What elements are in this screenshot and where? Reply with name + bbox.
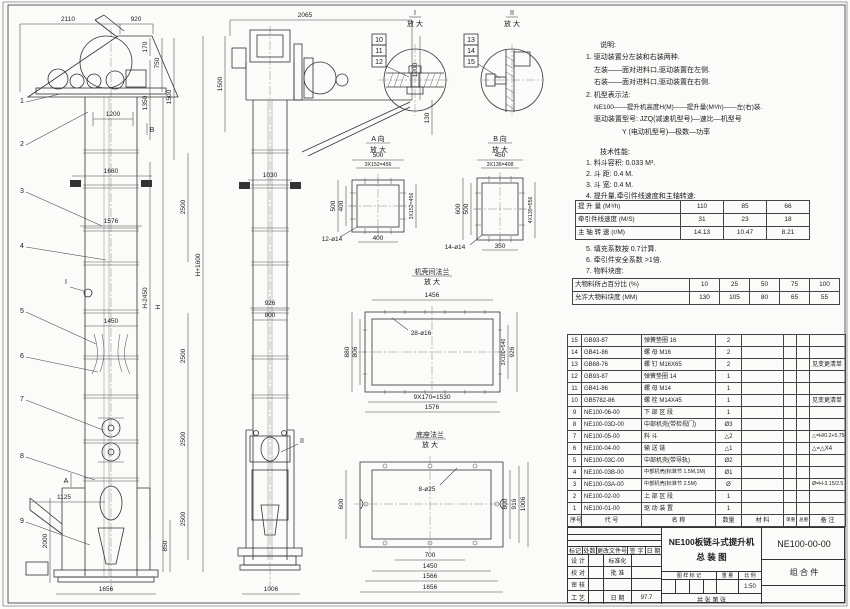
dim-926-side: 926 <box>265 300 276 307</box>
bom-unitweight <box>784 491 797 503</box>
dim-b-pitch: 3X136=408 <box>487 162 514 168</box>
flange-enlarged: 放 大 <box>424 277 440 286</box>
flange-title: 机壳间法兰 <box>415 267 450 276</box>
bom-header-material: 材 料 <box>742 515 784 527</box>
balloon-12: 12 <box>375 59 383 66</box>
perf-row-label: 牵引件线速度 (M/S) <box>576 214 681 227</box>
dim-base-600: 600 <box>338 498 345 509</box>
dim-base-holes: 8-ø25 <box>419 486 436 493</box>
bom-material <box>742 347 784 359</box>
bom-qty: Ø2 <box>716 455 742 467</box>
bom-row: 13GB68-76螺 钉 M16X652见变更清单 <box>568 359 846 371</box>
bom-row: 4NE100-03B-00中部机壳(标准节 1.5M,1M)Ø1 <box>568 467 846 479</box>
role-check: 校 对 <box>568 566 588 578</box>
bom-name: 螺 钉 M16X65 <box>642 359 716 371</box>
bom-code: NE100-03C-00 <box>582 455 642 467</box>
balloon-11: 11 <box>375 48 382 55</box>
dim-f-holes: 28-ø16 <box>411 330 432 337</box>
dim-b-600: 600 <box>455 203 462 214</box>
bom-no: 9 <box>568 407 582 419</box>
bom-name: 中部机壳(带导轨) <box>642 455 716 467</box>
detail-i-enlarged: 放 大 <box>407 19 423 28</box>
bom-material <box>742 395 784 407</box>
perf-value: 10.47 <box>724 227 767 240</box>
bom-totalweight <box>797 371 810 383</box>
dim-1576-flange: 1576 <box>425 404 440 411</box>
dim-1680: 1680 <box>104 168 119 175</box>
table-row: 主 轴 转 速 (r/M) 14.13 10.47 8.21 <box>576 227 810 240</box>
dim-1125: 1125 <box>57 494 71 501</box>
base-flange-detail: 底座法兰 放 大 8-ø25 600 800 916 1006 700 1450… <box>338 430 528 592</box>
table-row: 提 升 量 (M³/h) 110 85 66 <box>576 201 810 214</box>
bom-unitweight <box>784 359 797 371</box>
bom-code: GB93-87 <box>582 371 642 383</box>
bom-qty: 2 <box>716 359 742 371</box>
lump-size-table: 大物料所占百分比 (%) 10 25 50 75 100 允许大物料块度 (MM… <box>572 278 840 305</box>
bom-no: 8 <box>568 419 582 431</box>
bom-note: 见变更清单 <box>810 359 846 371</box>
drawing-title-line2: 总 装 图 <box>696 551 726 563</box>
bom-note <box>810 455 846 467</box>
side-bracket-left <box>239 182 250 189</box>
tech-block: 技术性能: 1. 料斗容积: 0.033 M³. 2. 斗 距: 0.4 M. … <box>578 147 844 202</box>
left-elevation-view: 2110 920 170 750 1350 1500 H-2450 H H+16… <box>20 15 203 594</box>
drawing-title-line1: NE100板链斗式提升机 <box>669 536 755 548</box>
bom-unitweight <box>784 443 797 455</box>
dim-750: 750 <box>154 57 161 68</box>
dim-1450: 1450 <box>104 318 119 325</box>
bom-header-totalweight: 总重 <box>797 515 810 527</box>
bom-totalweight <box>797 359 810 371</box>
bom-name: 上 部 区 段 <box>642 491 716 503</box>
bom-note <box>810 503 846 515</box>
dim-800-side: 800 <box>265 312 276 319</box>
bom-header-no: 序号 <box>568 515 582 527</box>
role-approve-sign <box>631 566 661 578</box>
size-value: 80 <box>750 292 780 305</box>
dim-h-1600: H+1600 <box>195 253 202 276</box>
bom-totalweight <box>797 479 810 491</box>
mark-box-2 <box>675 579 689 593</box>
note-line: 右装——面对进料口,驱动装置在右侧. <box>578 77 844 89</box>
bom-qty: 1 <box>716 383 742 395</box>
balloon-14: 14 <box>467 48 475 55</box>
bom-code: NE100-02-00 <box>582 491 642 503</box>
dim-h: H <box>155 304 162 309</box>
dim-700: 700 <box>425 552 436 559</box>
note-line: 2. 机型表示法: <box>578 90 844 102</box>
dim-2500-3: 2500 <box>180 431 187 446</box>
bom-material <box>742 503 784 515</box>
support-bracket-left <box>70 180 81 187</box>
dim-916: 916 <box>511 498 518 509</box>
bom-material <box>742 467 784 479</box>
bom-material <box>742 479 784 491</box>
dim-880: 880 <box>344 346 351 357</box>
table-row: 牵引件线速度 (M/S) 31 23 18 <box>576 214 810 227</box>
title-block-empty <box>761 585 846 604</box>
bom-material <box>742 491 784 503</box>
bom-no: 14 <box>568 347 582 359</box>
performance-table: 提 升 量 (M³/h) 110 85 66 牵引件线速度 (M/S) 31 2… <box>575 200 810 240</box>
bom-note <box>810 419 846 431</box>
tech-line: 5. 填充系数按 0.7计算. <box>578 244 844 255</box>
tech-line: 6. 牵引件安全系数 >1倍. <box>578 255 844 266</box>
scale-label: 比 例 <box>738 571 761 579</box>
casing-flange-detail: 机壳间法兰 放 大 28-ø16 1456 880 806 3X180=540 … <box>344 267 517 412</box>
size-value: 105 <box>720 292 750 305</box>
bom-row: 9NE100-06-00下 部 区 段1 <box>568 407 846 419</box>
bom-name: 中部机壳(标准节 1.5M,1M) <box>642 467 716 479</box>
bom-no: 2 <box>568 491 582 503</box>
perf-row-label: 提 升 量 (M³/h) <box>576 201 681 214</box>
mark-box-1 <box>661 579 675 593</box>
bom-no: 4 <box>568 467 582 479</box>
dim-806: 806 <box>352 346 359 357</box>
dim-a-holes: 12-ø14 <box>322 236 343 243</box>
bom-totalweight <box>797 419 810 431</box>
mark-box-4 <box>703 579 716 593</box>
dim-1656: 1656 <box>99 586 114 593</box>
bom-unitweight <box>784 383 797 395</box>
bom-header-note: 备 注 <box>810 515 846 527</box>
bom-name: 输 送 链 <box>642 443 716 455</box>
bom-material <box>742 431 784 443</box>
balloon-2: 2 <box>20 141 24 148</box>
note-line: 驱动装置型号: JZQ(减速机型号)—速比—机型号 <box>578 114 844 126</box>
bom-note <box>810 407 846 419</box>
balloon-3: 3 <box>20 188 24 195</box>
part-type: 组 合 件 <box>761 559 846 585</box>
section-mark-a: A <box>64 478 69 485</box>
bom-material <box>742 335 784 347</box>
dim-b-500: 500 <box>463 203 470 214</box>
bom-name: 中部机壳(标准节 2.5M) <box>642 479 716 491</box>
bom-row: 2NE100-02-00上 部 区 段1 <box>568 491 846 503</box>
bom-code: NE100-04-00 <box>582 443 642 455</box>
bom-qty: Ø1 <box>716 467 742 479</box>
bom-name: 驱 动 装 置 <box>642 503 716 515</box>
detail-ii-title: II <box>510 10 514 17</box>
bom-note <box>810 491 846 503</box>
sheet-count: 共 张 第 张 <box>661 593 761 604</box>
balloon-10: 10 <box>375 37 383 44</box>
dim-a-400-bottom: 400 <box>373 235 384 242</box>
role-process-sign <box>588 590 603 604</box>
bom-no: 11 <box>568 383 582 395</box>
role-standardization-sign <box>631 554 661 566</box>
bom-material <box>742 455 784 467</box>
bom-no: 10 <box>568 395 582 407</box>
bom-qty: △1 <box>716 443 742 455</box>
bom-totalweight <box>797 335 810 347</box>
bom-unitweight <box>784 419 797 431</box>
bom-name: 下 部 区 段 <box>642 407 716 419</box>
view-b-title: B 向 <box>493 134 507 143</box>
dim-1566: 1566 <box>423 573 438 580</box>
bom-code: NE100-01-00 <box>582 503 642 515</box>
rev-header-docno: 更改文件号 <box>596 546 627 554</box>
dim-2500-2: 2500 <box>180 348 187 363</box>
dim-1200: 1200 <box>106 111 121 118</box>
bom-qty: 1 <box>716 371 742 383</box>
perf-row-label: 主 轴 转 速 (r/M) <box>576 227 681 240</box>
bom-totalweight <box>797 383 810 395</box>
role-review-b-sign <box>631 578 661 590</box>
tech-line: 1. 料斗容积: 0.033 M³. <box>578 158 844 169</box>
bom-name: 弹簧垫圈 16 <box>642 335 716 347</box>
dim-1350: 1350 <box>142 95 149 110</box>
role-process: 工 艺 <box>568 590 588 604</box>
detail-ii-enlarged: 放 大 <box>504 19 520 28</box>
tech-title: 技术性能: <box>578 147 844 158</box>
bom-row: 12GB93-87弹簧垫圈 141 <box>568 371 846 383</box>
size-value: 75 <box>780 279 810 292</box>
perf-value: 85 <box>724 201 767 214</box>
bom-no: 13 <box>568 359 582 371</box>
dim-1500: 1500 <box>166 89 173 104</box>
bom-code: GB5782-86 <box>582 395 642 407</box>
balloon-8: 8 <box>20 453 24 460</box>
bom-no: 3 <box>568 479 582 491</box>
title-block: 标记 处数 更改文件号 签 字 日 期 设 计 标准化 校 对 批 准 审 核 … <box>567 527 845 603</box>
dim-920: 920 <box>131 16 142 23</box>
bom-totalweight <box>797 491 810 503</box>
dim-2065: 2065 <box>298 12 313 19</box>
detail-i-title: I <box>414 10 416 17</box>
dim-base-1656: 1656 <box>423 584 438 591</box>
bom-row: 6NE100-04-00输 送 链△1△=△X4 <box>568 443 846 455</box>
dim-a-pitch-right: 3X152=456 <box>409 193 415 220</box>
bom-unitweight <box>784 347 797 359</box>
note-line: 1. 驱动装置分左装和右装两种. <box>578 52 844 64</box>
dim-1456: 1456 <box>425 292 440 299</box>
note-line: NE100——提升机高度H(M)——提升量(M³/h)——左(右)装. <box>578 102 844 114</box>
role-date-label: 日 期 <box>603 590 631 604</box>
bom-code: GB41-86 <box>582 383 642 395</box>
rev-header-count: 处数 <box>582 546 596 554</box>
head-section-drive <box>28 15 178 97</box>
bom-code: NE100-06-00 <box>582 407 642 419</box>
dim-a-500-left: 500 <box>330 200 337 211</box>
bom-no: 5 <box>568 455 582 467</box>
size-value: 130 <box>690 292 720 305</box>
bom-note <box>810 335 846 347</box>
bom-unitweight <box>784 395 797 407</box>
table-row: 大物料所占百分比 (%) 10 25 50 75 100 <box>573 279 840 292</box>
perf-value: 18 <box>767 214 810 227</box>
bom-note: Ø=H-3.15/2.5 <box>810 479 846 491</box>
balloon-7: 7 <box>20 396 24 403</box>
bom-unitweight <box>784 431 797 443</box>
side-bracket-right <box>290 182 301 189</box>
bom-totalweight <box>797 503 810 515</box>
bom-row: 1NE100-01-00驱 动 装 置1 <box>568 503 846 515</box>
bom-note <box>810 467 846 479</box>
perf-value: 8.21 <box>767 227 810 240</box>
note-line: Y (电动机型号)—极数—功率 <box>578 127 844 139</box>
dim-f-pitch-b: 9X170=1530 <box>413 394 450 401</box>
view-a-title: A 向 <box>371 134 384 143</box>
tech-line: 2. 斗 距: 0.4 M. <box>578 169 844 180</box>
weight-value <box>716 579 738 593</box>
bom-qty: 1 <box>716 407 742 419</box>
tech-line: 3. 斗 宽: 0.4 M. <box>578 180 844 191</box>
perf-value: 14.13 <box>681 227 724 240</box>
bom-totalweight <box>797 443 810 455</box>
dim-2000: 2000 <box>42 533 49 548</box>
bom-code: NE100-05-00 <box>582 431 642 443</box>
bom-totalweight <box>797 407 810 419</box>
size-value: 55 <box>810 292 840 305</box>
bom-no: 6 <box>568 443 582 455</box>
role-approve: 批 准 <box>603 566 631 578</box>
bom-totalweight <box>797 431 810 443</box>
role-review: 审 核 <box>568 578 588 590</box>
dim-130: 130 <box>424 112 431 123</box>
bom-header-row: 序号 代 号 名 称 数量 材 料 单重 总重 备 注 <box>568 515 846 527</box>
balloon-4: 4 <box>20 243 24 250</box>
drawing-sheet: 2110 920 170 750 1350 1500 H-2450 H H+16… <box>0 0 850 609</box>
base-title: 底座法兰 <box>416 430 444 439</box>
dim-1500-side: 1500 <box>217 76 224 91</box>
bom-note <box>810 347 846 359</box>
dim-1576: 1576 <box>104 218 119 225</box>
bom-unitweight <box>784 503 797 515</box>
bom-note: 见变更清单 <box>810 395 846 407</box>
bom-material <box>742 407 784 419</box>
dim-b-350: 350 <box>495 243 506 250</box>
section-mark-b: B <box>150 127 155 134</box>
dim-2500-1: 2500 <box>180 199 187 214</box>
bom-name: 螺 栓 M14X45 <box>642 395 716 407</box>
bom-name: 中部机壳(带检视门) <box>642 419 716 431</box>
balloon-13: 13 <box>467 37 475 44</box>
bom-unitweight <box>784 467 797 479</box>
bom-material <box>742 419 784 431</box>
dim-a-400-left: 400 <box>338 200 345 211</box>
dim-a-pitch-top: 3X152=456 <box>365 162 392 168</box>
dim-1006: 1006 <box>264 586 279 593</box>
bom-totalweight <box>797 455 810 467</box>
bom-name: 弹簧垫圈 14 <box>642 371 716 383</box>
dim-h-2450: H-2450 <box>142 287 149 309</box>
bom-qty: 1 <box>716 395 742 407</box>
dim-1030: 1030 <box>263 172 278 179</box>
bom-code: NE100-03B-00 <box>582 467 642 479</box>
bom-code: NE100-03A-00 <box>582 479 642 491</box>
scale-value: 1:50 <box>738 579 761 593</box>
view-a: A 向 放 大 500 3X152=456 500 400 3X152=456 … <box>322 134 416 243</box>
bom-name: 料 斗 <box>642 431 716 443</box>
balloon-1: 1 <box>20 98 24 105</box>
drawing-date: 97.7 <box>631 590 661 604</box>
dim-a-500-top: 500 <box>373 152 384 159</box>
bom-qty: △2 <box>716 431 742 443</box>
bom-unitweight <box>784 479 797 491</box>
bom-row: 3NE100-03A-00中部机壳(标准节 2.5M)ØØ=H-3.15/2.5 <box>568 479 846 491</box>
view-b: B 向 放 大 450 3X136=408 600 500 4X139=556 … <box>445 134 535 251</box>
dim-b-450: 450 <box>495 152 506 159</box>
bom-row: 14GB41-86螺 母 M162 <box>568 347 846 359</box>
role-design-sign <box>588 554 603 566</box>
bom-totalweight <box>797 347 810 359</box>
bom-material <box>742 383 784 395</box>
bom-code: GB41-86 <box>582 347 642 359</box>
bom-no: 1 <box>568 503 582 515</box>
bom-header-unitweight: 单重 <box>784 515 797 527</box>
bom-code: GB93-87 <box>582 335 642 347</box>
bom-row: 10GB5782-86螺 栓 M14X451见变更清单 <box>568 395 846 407</box>
bom-qty: Ø3 <box>716 419 742 431</box>
dim-b-side: 4X139=556 <box>528 197 534 224</box>
bom-name: 螺 母 M14 <box>642 383 716 395</box>
notes-title: 说明: <box>578 40 844 52</box>
dim-926: 926 <box>509 346 516 357</box>
bom-row: 5NE100-03C-00中部机壳(带导轨)Ø2 <box>568 455 846 467</box>
role-review-sign <box>588 578 603 590</box>
dim-b-holes: 14-ø14 <box>445 244 466 251</box>
bom-totalweight <box>797 467 810 479</box>
perf-value: 110 <box>681 201 724 214</box>
bom-note <box>810 383 846 395</box>
bom-qty: 2 <box>716 335 742 347</box>
bom-header-name: 名 称 <box>642 515 716 527</box>
size-value: 50 <box>750 279 780 292</box>
note-line: 左装——面对进料口,驱动装置在左侧. <box>578 65 844 77</box>
bom-qty: 2 <box>716 347 742 359</box>
bom-unitweight <box>784 407 797 419</box>
tech-line: 7. 物料块度: <box>578 266 844 277</box>
mark-label: 图 样 标 记 <box>661 571 716 579</box>
bom-no: 12 <box>568 371 582 383</box>
detail-i-mark-label: I <box>65 279 67 286</box>
dim-1200-side: 1200 <box>412 62 419 77</box>
rev-header-date: 日 期 <box>645 546 661 554</box>
size-value: 10 <box>690 279 720 292</box>
bom-no: 15 <box>568 335 582 347</box>
base-enlarged: 放 大 <box>422 440 438 449</box>
size-value: 65 <box>780 292 810 305</box>
bom-header-code: 代 号 <box>582 515 642 527</box>
bom-totalweight <box>797 395 810 407</box>
side-elevation-view: II 2065 1500 1200 130 1030 926 800 1006 <box>217 12 432 594</box>
drawing-title-cell: NE100板链斗式提升机 总 装 图 <box>661 528 761 571</box>
bom-no: 7 <box>568 431 582 443</box>
role-design: 设 计 <box>568 554 588 566</box>
dim-850: 850 <box>162 540 169 551</box>
size-value: 100 <box>810 279 840 292</box>
size-row-label: 大物料所占百分比 (%) <box>573 279 690 292</box>
tech-block-2: 5. 填充系数按 0.7计算. 6. 牵引件安全系数 >1倍. 7. 物料块度: <box>578 244 844 277</box>
bom-row: 7NE100-05-00料 斗△2△=H/0.2+5.75 <box>568 431 846 443</box>
bom-note: △=△X4 <box>810 443 846 455</box>
drawing-number: NE100-00-00 <box>761 528 846 559</box>
support-bracket-right <box>141 180 152 187</box>
bom-row: 15GB93-87弹簧垫圈 162 <box>568 335 846 347</box>
dim-base-1006: 1006 <box>520 496 527 511</box>
detail-ii-view: II 放 大 13 14 15 <box>464 10 543 116</box>
bom-note <box>810 371 846 383</box>
balloon-9: 9 <box>20 518 24 525</box>
bom-qty: 1 <box>716 503 742 515</box>
dim-base-1450: 1450 <box>423 563 438 570</box>
rev-header-mark: 标记 <box>568 546 582 554</box>
bom-header-qty: 数量 <box>716 515 742 527</box>
bom-code: NE100-03D-00 <box>582 419 642 431</box>
bom-qty: Ø <box>716 479 742 491</box>
bom-row: 8NE100-03D-00中部机壳(带检视门)Ø3 <box>568 419 846 431</box>
